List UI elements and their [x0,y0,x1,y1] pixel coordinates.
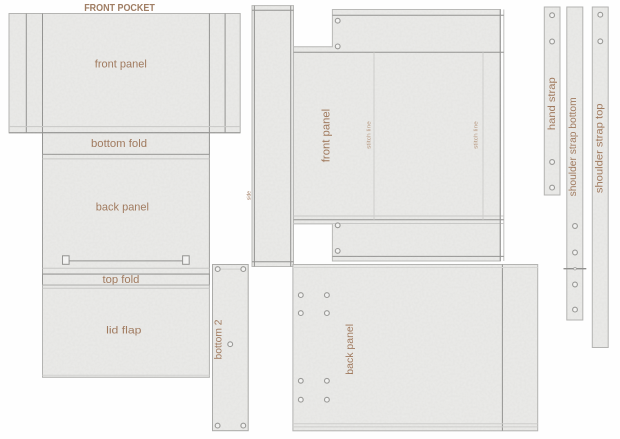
svg-text:back panel: back panel [344,324,356,375]
svg-text:bottom fold: bottom fold [91,138,147,150]
svg-text:lid flap: lid flap [106,324,142,336]
svg-text:stitch line: stitch line [366,121,372,149]
svg-text:hand strap: hand strap [546,77,558,130]
svg-text:bottom 2: bottom 2 [214,319,225,359]
svg-text:stitch line: stitch line [473,121,479,149]
svg-text:side: side [247,191,253,200]
svg-text:shoulder strap bottom: shoulder strap bottom [568,97,579,196]
svg-text:FRONT POCKET: FRONT POCKET [84,2,155,14]
svg-text:front panel: front panel [95,59,147,71]
svg-text:top fold: top fold [103,274,140,286]
svg-text:back panel: back panel [96,201,149,213]
svg-text:front panel: front panel [320,109,332,162]
svg-text:shoulder strap top: shoulder strap top [595,103,606,193]
